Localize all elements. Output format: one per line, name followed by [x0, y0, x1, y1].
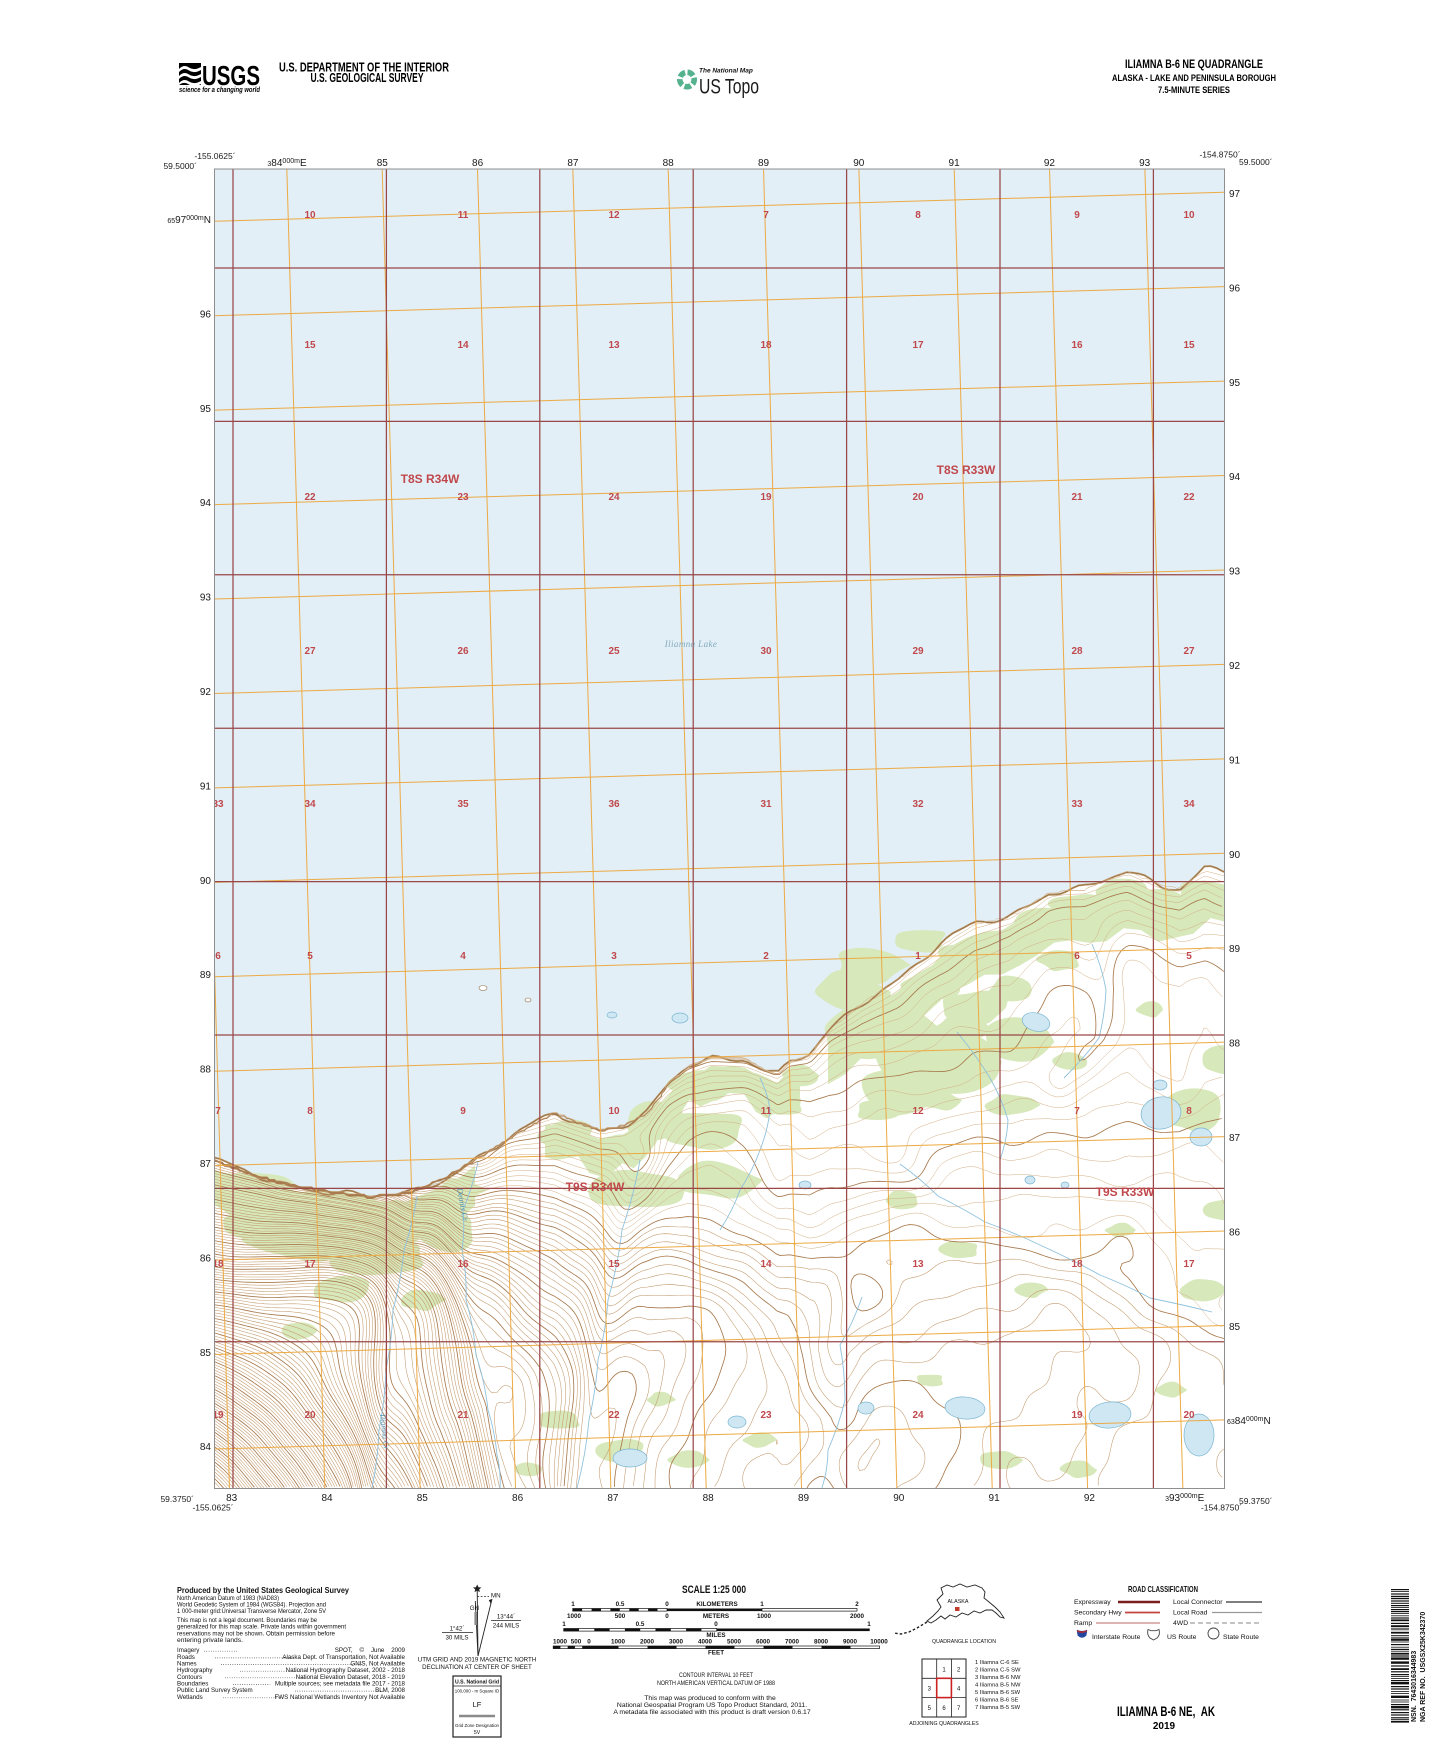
svg-text:6 Iliamna B-6 SE: 6 Iliamna B-6 SE	[975, 1698, 1019, 1704]
svg-text:19: 19	[1071, 1410, 1083, 1421]
svg-text:Secondary Hwy: Secondary Hwy	[1074, 1610, 1122, 1617]
svg-text:1000: 1000	[757, 1613, 772, 1620]
svg-text:17: 17	[304, 1259, 316, 1270]
svg-text:1: 1	[562, 1621, 566, 1628]
svg-text:A metadata file associated wit: A metadata file associated with this pro…	[613, 1709, 810, 1716]
svg-text:86: 86	[512, 1493, 524, 1504]
svg-text:7 Iliamna B-5 SW: 7 Iliamna B-5 SW	[975, 1705, 1021, 1711]
svg-text:89: 89	[758, 158, 770, 169]
svg-text:87: 87	[1229, 1133, 1241, 1144]
svg-text:6000: 6000	[756, 1639, 771, 1646]
svg-text:3000: 3000	[669, 1639, 684, 1646]
svg-text:20: 20	[1183, 1410, 1195, 1421]
svg-text:86: 86	[472, 158, 484, 169]
svg-text:11: 11	[761, 1106, 772, 1117]
svg-text:13: 13	[912, 1259, 924, 1270]
svg-text:91: 91	[200, 781, 212, 792]
svg-text:0.5: 0.5	[616, 1601, 625, 1608]
svg-text:88: 88	[663, 158, 675, 169]
svg-text:2000: 2000	[850, 1613, 865, 1620]
svg-text:science for a changing world: science for a changing world	[179, 85, 260, 94]
svg-text:ROAD CLASSIFICATION: ROAD CLASSIFICATION	[1128, 1584, 1198, 1594]
svg-text:2 Iliamna C-5 SW: 2 Iliamna C-5 SW	[975, 1668, 1021, 1674]
svg-text:59.5000´: 59.5000´	[163, 161, 197, 171]
svg-text:87: 87	[200, 1159, 212, 1170]
svg-text:1 Iliamna C-6 SE: 1 Iliamna C-6 SE	[975, 1660, 1019, 1666]
svg-text:7: 7	[957, 1706, 961, 1712]
svg-text:Iliamna Lake: Iliamna Lake	[664, 639, 718, 649]
svg-text:26: 26	[457, 646, 469, 657]
svg-text:24: 24	[912, 1410, 924, 1421]
svg-text:4 Iliamna B-5 NW: 4 Iliamna B-5 NW	[975, 1683, 1021, 1689]
svg-text:17: 17	[1183, 1259, 1195, 1270]
svg-text:1 000-meter grid:Universal Tra: 1 000-meter grid:Universal Transverse Me…	[177, 1608, 327, 1615]
svg-text:ILIAMNA B-6 NE, AK: ILIAMNA B-6 NE, AK	[1117, 1704, 1215, 1719]
svg-text:94: 94	[1229, 472, 1241, 483]
svg-text:This map was produced to confo: This map was produced to conform with th…	[644, 1695, 776, 1702]
svg-text:91: 91	[989, 1493, 1001, 1504]
svg-text:8000: 8000	[814, 1639, 829, 1646]
svg-text:90: 90	[893, 1493, 905, 1504]
svg-text:3 Iliamna B-6 NW: 3 Iliamna B-6 NW	[975, 1675, 1021, 1681]
svg-text:FEET: FEET	[708, 1650, 724, 1657]
svg-text:2000: 2000	[640, 1639, 655, 1646]
svg-text:MN: MN	[491, 1593, 501, 1600]
svg-text:2: 2	[855, 1601, 859, 1608]
svg-text:CONTOUR INTERVAL 10 FEET: CONTOUR INTERVAL 10 FEET	[679, 1672, 753, 1679]
svg-text:-154.8750´: -154.8750´	[1199, 150, 1240, 160]
svg-text:27: 27	[304, 646, 316, 657]
svg-text:Produced by the United States: Produced by the United States Geological…	[177, 1586, 350, 1595]
svg-text:90: 90	[1229, 850, 1241, 861]
svg-text:6: 6	[942, 1706, 946, 1712]
svg-text:393000mE: 393000mE	[1165, 1493, 1205, 1504]
svg-text:100,000 - m Square ID: 100,000 - m Square ID	[455, 1689, 499, 1694]
svg-text:Expressway: Expressway	[1074, 1599, 1111, 1606]
svg-text:1: 1	[867, 1621, 871, 1628]
svg-text:11: 11	[458, 210, 469, 221]
svg-text:5000: 5000	[727, 1639, 742, 1646]
svg-text:34: 34	[304, 799, 316, 810]
svg-text:17: 17	[912, 340, 924, 351]
svg-text:91: 91	[1229, 755, 1241, 766]
svg-text:92: 92	[1044, 158, 1056, 169]
svg-text:4: 4	[957, 1687, 961, 1693]
svg-text:1: 1	[915, 951, 921, 962]
svg-text:244 MILS: 244 MILS	[493, 1623, 519, 1630]
svg-text:87: 87	[567, 158, 579, 169]
svg-text:20: 20	[304, 1410, 316, 1421]
svg-text:NSN. 7643016344983: NSN. 7643016344983	[1411, 1651, 1418, 1722]
svg-text:24: 24	[608, 492, 620, 503]
svg-text:84: 84	[200, 1442, 212, 1453]
svg-text:ILIAMNA B-6 NE QUADRANGLE: ILIAMNA B-6 NE QUADRANGLE	[1125, 57, 1263, 71]
svg-text:22: 22	[1183, 492, 1195, 503]
svg-text:2: 2	[763, 951, 769, 962]
svg-text:1: 1	[942, 1668, 946, 1674]
svg-text:84: 84	[321, 1493, 333, 1504]
svg-text:US Topo: US Topo	[699, 76, 759, 99]
svg-text:97: 97	[1229, 189, 1241, 200]
svg-text:10: 10	[304, 210, 316, 221]
svg-text:Local Road: Local Road	[1173, 1610, 1208, 1617]
svg-text:92: 92	[200, 687, 212, 698]
svg-text:6: 6	[1074, 951, 1080, 962]
svg-text:13°44´: 13°44´	[497, 1614, 515, 1621]
svg-text:12: 12	[608, 210, 620, 221]
svg-text:18: 18	[1071, 1259, 1083, 1270]
svg-text:91: 91	[949, 158, 961, 169]
svg-text:94: 94	[200, 498, 212, 509]
svg-text:30: 30	[760, 646, 772, 657]
svg-text:6: 6	[215, 951, 221, 962]
svg-text:92: 92	[1229, 661, 1241, 672]
svg-text:9: 9	[1074, 210, 1080, 221]
svg-text:0: 0	[587, 1639, 591, 1646]
svg-text:State Route: State Route	[1223, 1634, 1259, 1641]
svg-text:500: 500	[615, 1613, 626, 1620]
svg-text:89: 89	[200, 970, 212, 981]
svg-text:85: 85	[200, 1348, 212, 1359]
svg-text:23: 23	[760, 1410, 772, 1421]
svg-text:95: 95	[1229, 378, 1241, 389]
svg-text:KILOMETERS: KILOMETERS	[696, 1601, 737, 1608]
svg-text:1: 1	[571, 1601, 575, 1608]
svg-text:5 Iliamna B-6 SW: 5 Iliamna B-6 SW	[975, 1690, 1021, 1696]
svg-text:22: 22	[304, 492, 316, 503]
svg-text:85: 85	[417, 1493, 429, 1504]
svg-text:T9S R34W: T9S R34W	[566, 1180, 625, 1194]
svg-text:21: 21	[457, 1410, 469, 1421]
svg-text:NGA REF NO. USGSX25K342370: NGA REF NO. USGSX25K342370	[1420, 1612, 1427, 1722]
svg-text:96: 96	[1229, 283, 1241, 294]
svg-text:LF: LF	[473, 1700, 482, 1709]
svg-text:5V: 5V	[474, 1730, 481, 1736]
svg-text:87: 87	[607, 1493, 619, 1504]
svg-text:14: 14	[760, 1259, 772, 1270]
svg-text:59.3750´: 59.3750´	[160, 1494, 194, 1504]
svg-text:-154.8750´: -154.8750´	[1201, 1503, 1242, 1513]
svg-text:96: 96	[200, 309, 212, 320]
svg-text:4000: 4000	[698, 1639, 713, 1646]
svg-text:3: 3	[611, 951, 617, 962]
svg-text:-155.0625´: -155.0625´	[194, 151, 235, 161]
svg-text:7.5-MINUTE SERIES: 7.5-MINUTE SERIES	[1158, 85, 1230, 96]
svg-text:9: 9	[460, 1106, 466, 1117]
svg-text:88: 88	[1229, 1039, 1241, 1050]
svg-text:90: 90	[200, 876, 212, 887]
svg-text:35: 35	[457, 799, 469, 810]
svg-text:US Route: US Route	[1167, 1634, 1197, 1641]
svg-text:2019: 2019	[1153, 1721, 1176, 1732]
svg-text:93: 93	[1229, 567, 1241, 578]
svg-text:21: 21	[1071, 492, 1083, 503]
svg-text:86: 86	[200, 1253, 212, 1264]
svg-text:7: 7	[215, 1106, 221, 1117]
svg-text:23: 23	[457, 492, 469, 503]
svg-text:0.5: 0.5	[636, 1621, 645, 1628]
svg-text:0: 0	[665, 1613, 669, 1620]
svg-text:93: 93	[200, 593, 212, 604]
svg-text:U.S. GEOLOGICAL SURVEY: U.S. GEOLOGICAL SURVEY	[311, 71, 424, 85]
svg-text:19: 19	[760, 492, 772, 503]
svg-text:18: 18	[760, 340, 772, 351]
svg-text:8: 8	[307, 1106, 313, 1117]
svg-text:95: 95	[200, 404, 212, 415]
svg-text:4WD: 4WD	[1173, 1620, 1188, 1627]
svg-text:5: 5	[928, 1706, 932, 1712]
svg-text:Interstate Route: Interstate Route	[1092, 1634, 1141, 1641]
svg-text:4: 4	[460, 951, 466, 962]
svg-text:ALASKA - LAKE AND PENINSULA BO: ALASKA - LAKE AND PENINSULA BOROUGH	[1112, 73, 1276, 84]
svg-text:Local Connector: Local Connector	[1173, 1599, 1223, 1606]
svg-text:6597000mN: 6597000mN	[167, 215, 211, 226]
svg-text:89: 89	[1229, 944, 1241, 955]
svg-text:15: 15	[1183, 340, 1195, 351]
svg-text:15: 15	[608, 1259, 620, 1270]
svg-text:31: 31	[760, 799, 772, 810]
svg-text:10000: 10000	[870, 1639, 888, 1646]
svg-text:36: 36	[608, 799, 620, 810]
svg-text:33: 33	[1071, 799, 1083, 810]
svg-text:1000: 1000	[553, 1639, 568, 1646]
svg-text:1000: 1000	[611, 1639, 626, 1646]
svg-text:5: 5	[1186, 951, 1192, 962]
svg-text:28: 28	[1071, 646, 1083, 657]
svg-text:27: 27	[1183, 646, 1195, 657]
svg-text:30 MILS: 30 MILS	[445, 1635, 468, 1642]
svg-text:SCALE 1:25 000: SCALE 1:25 000	[682, 1584, 746, 1596]
svg-text:NORTH AMERICAN VERTICAL DATUM: NORTH AMERICAN VERTICAL DATUM OF 1988	[657, 1680, 775, 1687]
svg-text:90: 90	[853, 158, 865, 169]
svg-text:85: 85	[1229, 1322, 1241, 1333]
svg-text:10: 10	[1183, 210, 1195, 221]
svg-text:Grid Zone Designation: Grid Zone Designation	[455, 1723, 499, 1728]
svg-text:7000: 7000	[785, 1639, 800, 1646]
svg-text:88: 88	[200, 1065, 212, 1076]
svg-text:8: 8	[1186, 1106, 1192, 1117]
svg-text:-155.0625´: -155.0625´	[192, 1503, 233, 1513]
svg-text:89: 89	[798, 1493, 810, 1504]
svg-text:The National Map: The National Map	[699, 68, 753, 75]
svg-text:Ramp: Ramp	[1074, 1620, 1092, 1627]
svg-text:16: 16	[1071, 340, 1083, 351]
svg-text:6384000mN: 6384000mN	[1227, 1416, 1271, 1427]
svg-text:92: 92	[1084, 1493, 1096, 1504]
svg-text:METERS: METERS	[703, 1613, 729, 1620]
svg-text:ADJOINING QUADRANGLES: ADJOINING QUADRANGLES	[909, 1721, 979, 1727]
svg-text:384000mE: 384000mE	[267, 158, 307, 169]
svg-text:entering private lands.: entering private lands.	[177, 1637, 243, 1644]
svg-text:12: 12	[912, 1106, 924, 1117]
svg-text:T8S R33W: T8S R33W	[937, 463, 996, 477]
svg-text:9000: 9000	[843, 1639, 858, 1646]
svg-text:3: 3	[928, 1687, 932, 1693]
svg-text:T9S R33W: T9S R33W	[1096, 1185, 1155, 1199]
svg-text:1000: 1000	[567, 1613, 582, 1620]
svg-text:1°42´: 1°42´	[450, 1626, 465, 1633]
svg-text:8: 8	[915, 210, 921, 221]
svg-text:GN: GN	[470, 1605, 479, 1612]
svg-text:U.S. National Grid: U.S. National Grid	[455, 1680, 499, 1686]
svg-text:T8S R34W: T8S R34W	[401, 472, 460, 486]
svg-text:86: 86	[1229, 1227, 1241, 1238]
svg-text:29: 29	[912, 646, 924, 657]
svg-text:20: 20	[912, 492, 924, 503]
svg-text:16: 16	[457, 1259, 469, 1270]
svg-text:5: 5	[307, 951, 313, 962]
svg-text:15: 15	[304, 340, 316, 351]
svg-text:National Geospatial Program US: National Geospatial Program US Topo Prod…	[617, 1702, 807, 1709]
svg-text:ALASKA: ALASKA	[948, 1599, 969, 1605]
svg-text:Wetlands: Wetlands	[177, 1694, 203, 1701]
svg-text:500: 500	[571, 1639, 582, 1646]
svg-text:14: 14	[457, 340, 469, 351]
svg-text:FWS National Wetlands In: FWS National Wetlands Inventory Not Avai…	[275, 1694, 406, 1701]
svg-text:10: 10	[608, 1106, 620, 1117]
svg-text:0: 0	[665, 1601, 669, 1608]
svg-text:UTM GRID AND 2019 MAGNETIC NOR: UTM GRID AND 2019 MAGNETIC NORTH	[418, 1657, 537, 1664]
svg-text:QUADRANGLE LOCATION: QUADRANGLE LOCATION	[932, 1639, 996, 1645]
svg-text:59.3750´: 59.3750´	[1239, 1496, 1273, 1506]
svg-text:34: 34	[1183, 799, 1195, 810]
svg-text:25: 25	[608, 646, 620, 657]
svg-text:7: 7	[763, 210, 769, 221]
svg-text:93: 93	[1139, 158, 1151, 169]
svg-text:2: 2	[957, 1668, 961, 1674]
svg-text:22: 22	[608, 1410, 620, 1421]
svg-text:32: 32	[912, 799, 924, 810]
svg-text:85: 85	[377, 158, 389, 169]
svg-text:1: 1	[760, 1601, 764, 1608]
svg-text:59.5000´: 59.5000´	[1239, 157, 1273, 167]
svg-text:DECLINATION AT CENTER OF SHEET: DECLINATION AT CENTER OF SHEET	[422, 1664, 532, 1671]
svg-text:7: 7	[1074, 1106, 1080, 1117]
svg-text:88: 88	[703, 1493, 715, 1504]
svg-text:0: 0	[714, 1621, 718, 1628]
svg-text:13: 13	[608, 340, 620, 351]
